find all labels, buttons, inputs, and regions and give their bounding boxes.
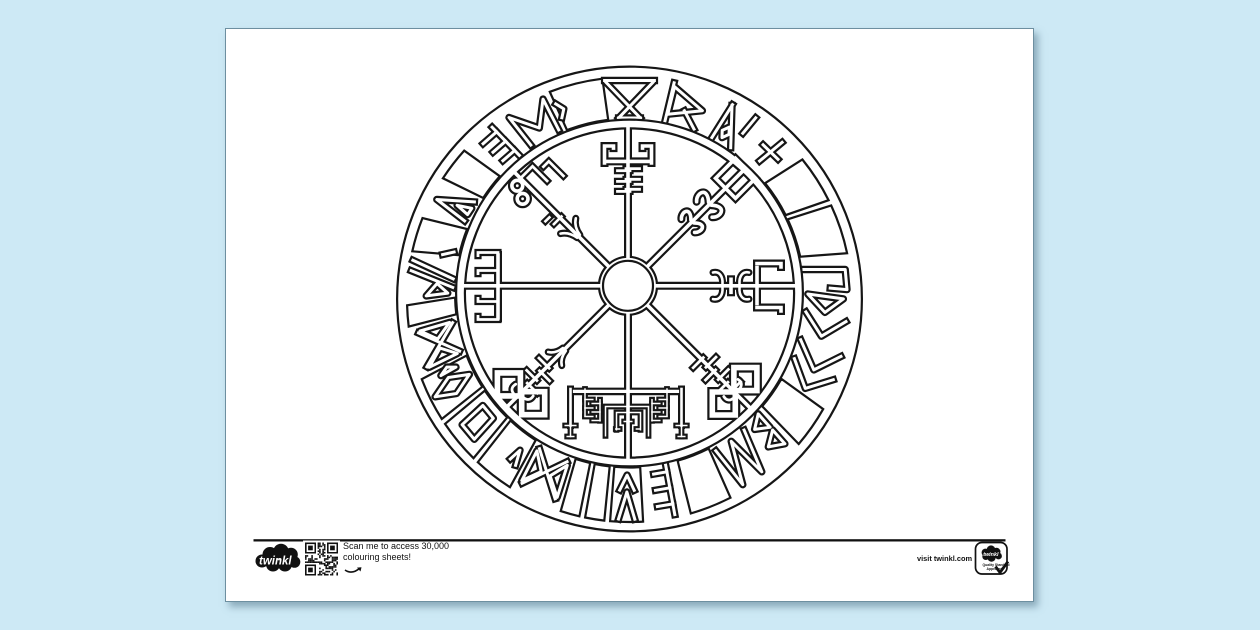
svg-text:twinkl: twinkl	[983, 552, 999, 558]
svg-text:twinkl: twinkl	[259, 556, 292, 568]
